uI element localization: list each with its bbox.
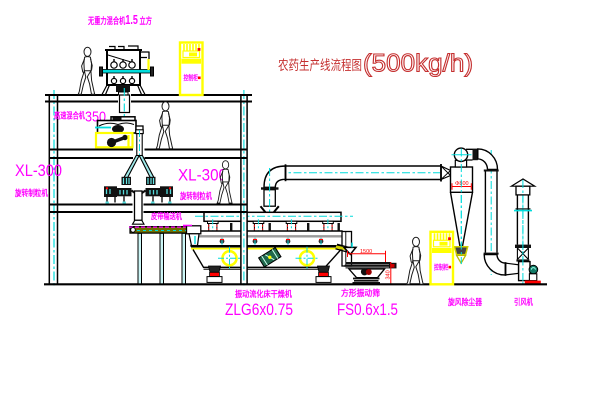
svg-text:皮带输送机: 皮带输送机 bbox=[150, 211, 182, 221]
svg-text:FS0.6x1.5: FS0.6x1.5 bbox=[337, 300, 398, 319]
svg-text:引风机: 引风机 bbox=[514, 297, 533, 307]
svg-text:1500: 1500 bbox=[360, 249, 372, 255]
svg-text:340: 340 bbox=[386, 270, 392, 279]
svg-text:农药生产线流程图: 农药生产线流程图 bbox=[278, 58, 362, 73]
svg-text:旋转制粒机: 旋转制粒机 bbox=[14, 188, 48, 198]
svg-text:方形振动筛: 方形振动筛 bbox=[341, 288, 380, 298]
svg-text:XL-300: XL-300 bbox=[15, 161, 62, 180]
svg-text:ZLG6x0.75: ZLG6x0.75 bbox=[225, 300, 293, 319]
svg-text:XL-300: XL-300 bbox=[178, 166, 227, 185]
svg-text:高速混合机: 高速混合机 bbox=[54, 111, 85, 121]
svg-text:旋风除尘器: 旋风除尘器 bbox=[447, 297, 482, 307]
svg-text:振动流化床干燥机: 振动流化床干燥机 bbox=[235, 289, 292, 299]
svg-text:(500kg/h): (500kg/h) bbox=[363, 50, 473, 78]
svg-text:旋转制粒机: 旋转制粒机 bbox=[179, 191, 212, 201]
